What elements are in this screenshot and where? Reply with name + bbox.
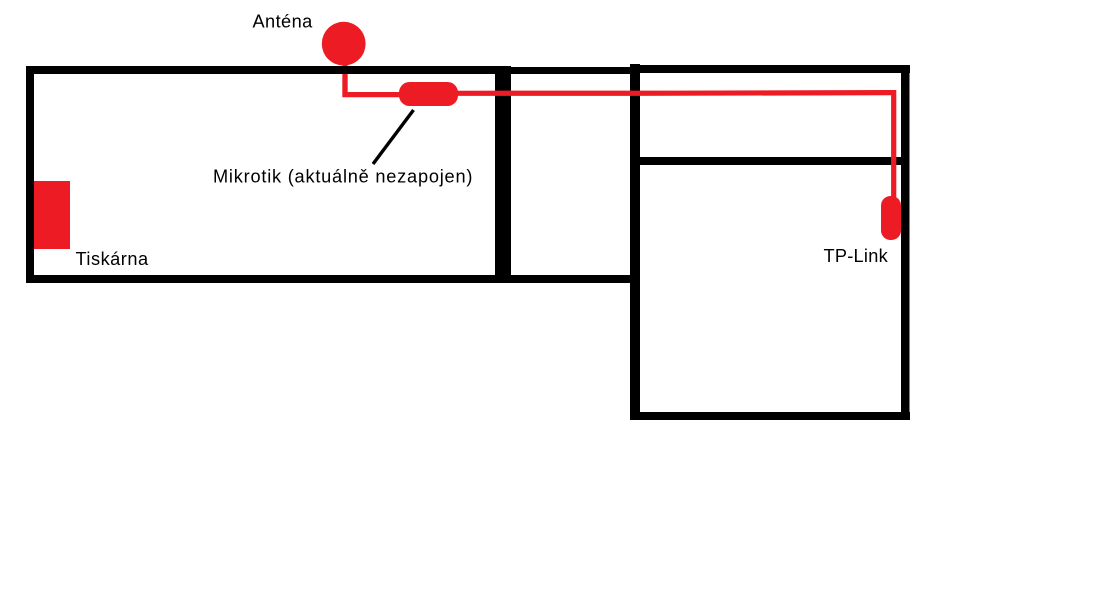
- svg-text:Tiskárna: Tiskárna: [76, 249, 149, 269]
- svg-text:Mikrotik (aktuálně nezapojen): Mikrotik (aktuálně nezapojen): [213, 166, 473, 186]
- svg-text:Anténa: Anténa: [253, 11, 314, 31]
- svg-text:TP-Link: TP-Link: [824, 246, 889, 266]
